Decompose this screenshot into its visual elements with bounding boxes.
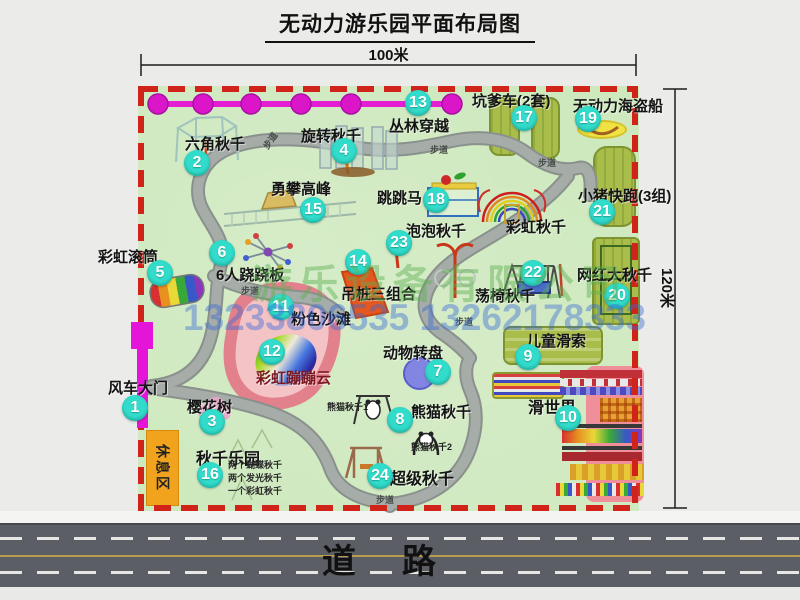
road-label: 道路 — [322, 534, 482, 583]
label-seesaw: 6人跷跷板 — [216, 264, 284, 285]
badge-11: 11 — [268, 294, 294, 320]
badge-2: 2 — [184, 150, 210, 176]
badge-15: 15 — [300, 197, 326, 223]
badge-22: 22 — [520, 260, 546, 286]
badge-8: 8 — [387, 407, 413, 433]
slide-rainbow-band — [562, 429, 642, 443]
slide-wave-band — [570, 464, 644, 480]
badge-20: 20 — [604, 283, 630, 309]
badge-3: 3 — [199, 409, 225, 435]
badge-4: 4 — [331, 138, 357, 164]
swing-park-note: 两个发光秋千 — [228, 472, 282, 485]
walkway-label: 步道 — [241, 284, 259, 297]
badge-6: 6 — [209, 240, 235, 266]
rest-area: 休息区 — [146, 430, 179, 506]
label-pink-beach: 粉色沙滩 — [291, 308, 351, 329]
badge-16: 16 — [197, 462, 223, 488]
badge-21: 21 — [589, 199, 615, 225]
label-panda-swing-2: 熊猫秋千2 — [411, 440, 452, 453]
label-jumping-horse: 跳跳马 — [377, 187, 422, 208]
label-swing-chair: 荡椅秋千 — [475, 285, 535, 306]
rest-area-label: 休息区 — [153, 444, 173, 492]
swing-park-note: 一个彩虹秋千 — [228, 485, 282, 498]
badge-12: 12 — [259, 339, 285, 365]
windmill-gate-icon — [131, 322, 153, 349]
page-title: 无动力游乐园平面布局图 — [265, 8, 535, 43]
badge-13: 13 — [405, 90, 431, 116]
label-jungle-crossing: 丛林穿越 — [389, 115, 449, 136]
badge-14: 14 — [345, 249, 371, 275]
label-panda-swing: 熊猫秋千 — [411, 401, 471, 422]
swing-park-notes: 两个蝴蝶秋千 两个发光秋千 一个彩虹秋千 — [228, 459, 282, 498]
slide-stripe-red — [560, 370, 642, 378]
swing-park-note: 两个蝴蝶秋千 — [228, 459, 282, 472]
slide-stripe-dark2 — [562, 446, 642, 450]
label-big-swing: 网红大秋千 — [577, 264, 652, 285]
walkway-label: 步道 — [455, 315, 473, 328]
badge-18: 18 — [423, 187, 449, 213]
label-rainbow-cloud: 彩虹蹦蹦云 — [256, 367, 331, 388]
slide-multi-stripe — [556, 483, 644, 496]
badge-24: 24 — [367, 463, 393, 489]
slide-stripe-maroon — [562, 452, 642, 461]
badge-23: 23 — [386, 230, 412, 256]
walkway-label: 步道 — [376, 493, 394, 506]
badge-9: 9 — [515, 344, 541, 370]
label-bubble-swing: 泡泡秋千 — [406, 220, 466, 241]
road: 道路 — [0, 523, 800, 589]
badge-19: 19 — [575, 106, 601, 132]
badge-5: 5 — [147, 260, 173, 286]
walkway-label: 步道 — [430, 143, 448, 156]
height-dimension-label: 120米 — [657, 268, 678, 328]
road-gap — [0, 511, 800, 523]
badge-1: 1 — [122, 395, 148, 421]
slide-stripe-dash — [560, 379, 642, 386]
label-panda-swing-1: 熊猫秋千1 — [327, 400, 368, 413]
label-rainbow-swing-arcs: 彩虹秋千 — [506, 216, 566, 237]
walkway-label: 步道 — [538, 156, 556, 169]
label-hanging-pile: 吊桩三组合 — [341, 283, 416, 304]
page-title-wrap: 无动力游乐园平面布局图 — [0, 8, 800, 43]
slide-checker — [600, 398, 642, 422]
label-super-swing: 超级秋千 — [390, 465, 454, 489]
label-climbing-peak: 勇攀高峰 — [271, 178, 331, 199]
label-pit-car: 坑爹车(2套) — [472, 90, 550, 111]
width-dimension-label: 100米 — [140, 44, 637, 65]
below-road-strip — [0, 587, 800, 600]
badge-7: 7 — [425, 359, 451, 385]
badge-10: 10 — [555, 405, 581, 431]
badge-17: 17 — [511, 105, 537, 131]
